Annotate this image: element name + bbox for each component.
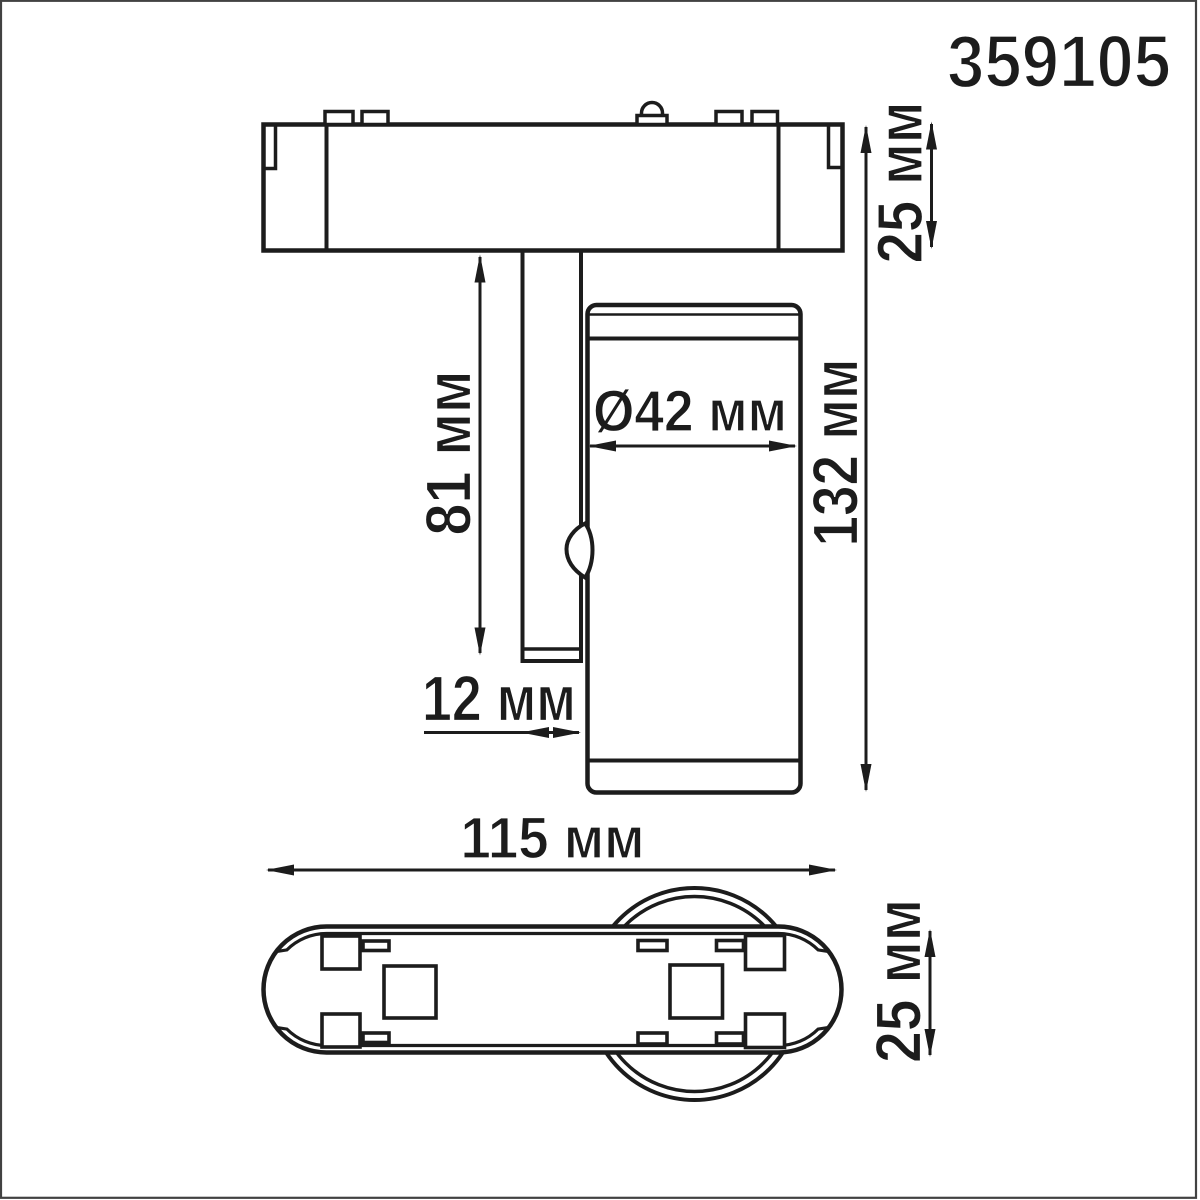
svg-text:12 мм: 12 мм [422, 663, 576, 735]
svg-text:25 мм: 25 мм [864, 102, 936, 264]
svg-text:359105: 359105 [947, 20, 1171, 103]
svg-text:81 мм: 81 мм [413, 371, 485, 536]
svg-text:115 мм: 115 мм [461, 806, 645, 871]
svg-text:25 мм: 25 мм [863, 899, 935, 1063]
svg-text:132 мм: 132 мм [800, 359, 872, 547]
svg-text:Ø42 мм: Ø42 мм [593, 379, 787, 444]
